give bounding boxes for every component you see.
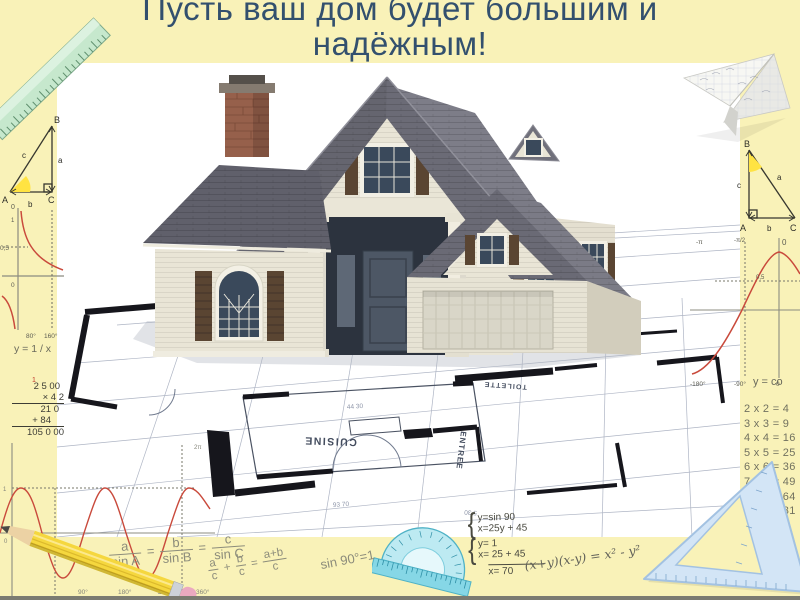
system1-line2: x=25y + 45 [478,523,528,535]
label-80deg: 80° [26,332,36,340]
set-square-triangle [612,452,800,600]
hyperbola-graph: 0 1 0,5 0 80° 160° y = 1 / x [0,198,66,358]
label-zero-top: 0 [11,204,15,211]
system2-line2: x= 25 + 45 [478,549,525,561]
label-neg180: -180° [690,380,706,388]
side-a: a [58,156,63,165]
pencil [0,506,230,600]
label-neg90: -90° [734,380,746,388]
roof-dormer [509,125,559,161]
label-origin: 0 [11,282,15,289]
sin-identity-formula: sin 90°=1 [319,547,376,572]
multiplicand: 2 5 00 [12,381,64,392]
times-table-row: 4 x 4 = 16 [744,431,796,446]
label-zero-top: 0 [782,238,787,247]
system1-line1: y=sin 90 [477,512,527,524]
garage-gable-window [465,233,519,267]
house-3d-model [143,75,641,357]
brace: { [468,543,476,556]
plan-dimension-labels: 44 30 93 70 5 30 [333,403,477,516]
vertex-c: C [790,223,797,233]
protractor [372,524,480,600]
brick-chimney [219,75,275,157]
angle-marker [10,176,31,192]
system-1: { y=sin 90 x=25y + 45 [467,511,543,534]
vertex-a: A [740,223,746,233]
paper-airplane [678,48,800,144]
brace: { [468,517,476,530]
triangle-diagram-left: B A C a b c [0,112,75,210]
long-multiplication: 1 2 5 00 × 4 2 21 0 + 84 105 0 00 [12,381,64,438]
garage-side-wall [587,281,641,355]
plan-dim-2: 93 70 [333,501,350,509]
side-b: b [767,224,772,233]
side-c: c [737,181,741,190]
triangle-diagram-right: B A C c a b [735,138,800,236]
hyperbola-curve [21,211,63,270]
arched-window [195,265,284,341]
carry-digit: 1 [32,375,36,386]
fs-d3: c [263,559,288,575]
plan-label-entree: ENTREE [454,431,468,470]
vertex-b: B [744,139,750,149]
product-result: 105 0 00 [12,427,64,438]
label-160deg: 160° [44,332,58,340]
side-c: c [22,151,26,160]
slide-bottom-edge [0,596,800,600]
times-table-row: 2 x 2 = 4 [744,402,796,417]
label-neg-pi: -π [696,239,703,246]
plan-label-cuisine: CUISINE [304,434,357,448]
cosine-graph: -π -π/2 0 0,5 -180° -90° 0 [690,228,800,393]
label-one: 1 [11,218,15,224]
left-wing [143,165,331,357]
plan-label-toilette: TOILETTE [483,380,527,390]
label-2pi: 2π [194,445,201,451]
label-half: 0,5 [0,245,9,252]
label-neg-half-pi: -π/2 [734,238,746,244]
cosine-curve [692,252,800,374]
label-half: 0,5 [756,275,765,281]
label-one: 1 [3,487,7,493]
presentation-slide: Пусть ваш дом будет большим и надёжным! [0,0,800,600]
partial-product-2: + 84 [12,415,64,427]
equals: = [250,557,259,570]
cosine-caption: y = co [753,376,783,388]
plan-dim-1: 44 30 [347,403,364,411]
system2-line1: y= 1 [478,538,525,550]
times-table-row: 3 x 3 = 9 [744,417,796,432]
fs-d2: c [236,565,248,579]
garage-door [423,291,553,349]
vertex-b: B [54,115,60,125]
partial-product-1: 21 0 [12,404,64,415]
side-a: a [777,173,782,182]
hyperbola-caption: y = 1 / x [14,343,52,355]
multiplier: × 4 2 [12,392,64,404]
